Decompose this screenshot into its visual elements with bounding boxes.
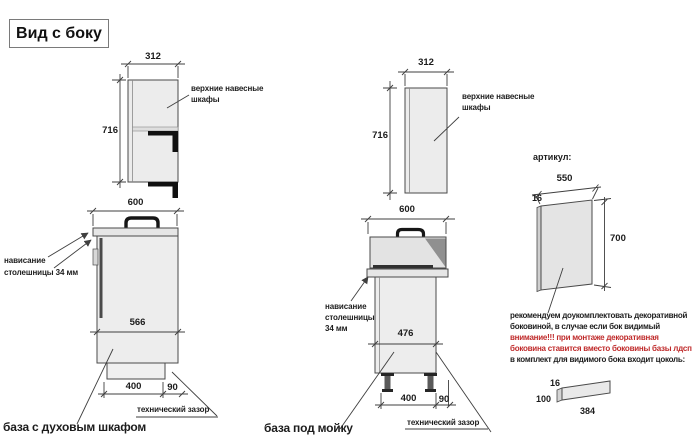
plinth-height-dim: 100 [536, 394, 551, 404]
note-line: рекомендуем доукомплектовать декоративно… [510, 311, 687, 320]
middle-base-caption: база под мойку [264, 421, 353, 435]
plinth [107, 363, 165, 379]
adjustable-feet-icon [381, 373, 437, 392]
middle-overhang-label: нависание [325, 302, 366, 311]
middle-overhang-label: 34 мм [325, 324, 347, 333]
middle-overhang-label: столешницы [325, 313, 375, 322]
middle-base-depth-dim: 476 [375, 328, 436, 339]
countertop [93, 228, 178, 236]
drawing-linework [0, 0, 700, 438]
left-overhang-label: нависание [4, 256, 45, 265]
middle-upper-height-dim: 716 [364, 130, 388, 141]
middle-gap-dim: 90 [436, 394, 452, 405]
note-line: боковиной, в случае если бок видимый [510, 322, 660, 331]
left-upper-width-dim: 312 [128, 51, 178, 62]
middle-plinth-depth-dim: 400 [381, 393, 436, 404]
side-view-drawing-sheet: Вид с боку 312 716 верхние навесные шкаф… [0, 0, 700, 438]
note-line: в комплект для видимого бока входит цоко… [510, 355, 685, 364]
left-base-caption: база с духовым шкафом [3, 420, 146, 434]
cabinet-body [375, 277, 436, 373]
oven-handle-icon [126, 218, 158, 228]
note-warning-line: боковина ставится вместо боковины базы л… [510, 344, 692, 353]
left-overhang-label: столешницы 34 мм [4, 268, 78, 277]
left-upper-cabinet-drawing [128, 80, 178, 198]
panel-width-dim: 550 [537, 173, 592, 184]
view-title: Вид с боку [9, 19, 109, 48]
panel-thickness-dim: 16 [532, 193, 542, 203]
left-base-cabinet-drawing [93, 218, 178, 379]
middle-base-cabinet-drawing [367, 230, 448, 393]
cabinet-body [97, 236, 178, 363]
left-plinth-depth-dim: 400 [104, 381, 163, 392]
plinth-length-dim: 384 [580, 406, 595, 416]
left-upper-height-dim: 716 [94, 125, 118, 136]
countertop [367, 269, 448, 277]
left-technical-gap-label: технический зазор [137, 405, 209, 414]
left-upper-cabinet-label: шкафы [191, 95, 219, 104]
plinth-thickness-dim: 16 [550, 378, 560, 388]
article-label: артикул: [533, 152, 571, 162]
middle-upper-width-dim: 312 [405, 57, 447, 68]
middle-upper-cabinet-label: шкафы [462, 103, 490, 112]
left-base-depth-dim: 566 [97, 317, 178, 328]
side-panel-drawing [537, 200, 592, 292]
left-gap-dim: 90 [163, 382, 182, 393]
panel-height-dim: 700 [610, 233, 626, 244]
note-warning-line: внимание!!! при монтаже декоративная [510, 333, 659, 342]
plinth-drawing [557, 381, 610, 402]
middle-technical-gap-label: технический зазор [407, 418, 479, 427]
middle-upper-cabinet-label: верхние навесные [462, 92, 534, 101]
left-upper-cabinet-label: верхние навесные [191, 84, 263, 93]
left-base-width-dim: 600 [93, 197, 178, 208]
middle-base-width-dim: 600 [368, 204, 446, 215]
middle-upper-cabinet-drawing [405, 88, 447, 193]
